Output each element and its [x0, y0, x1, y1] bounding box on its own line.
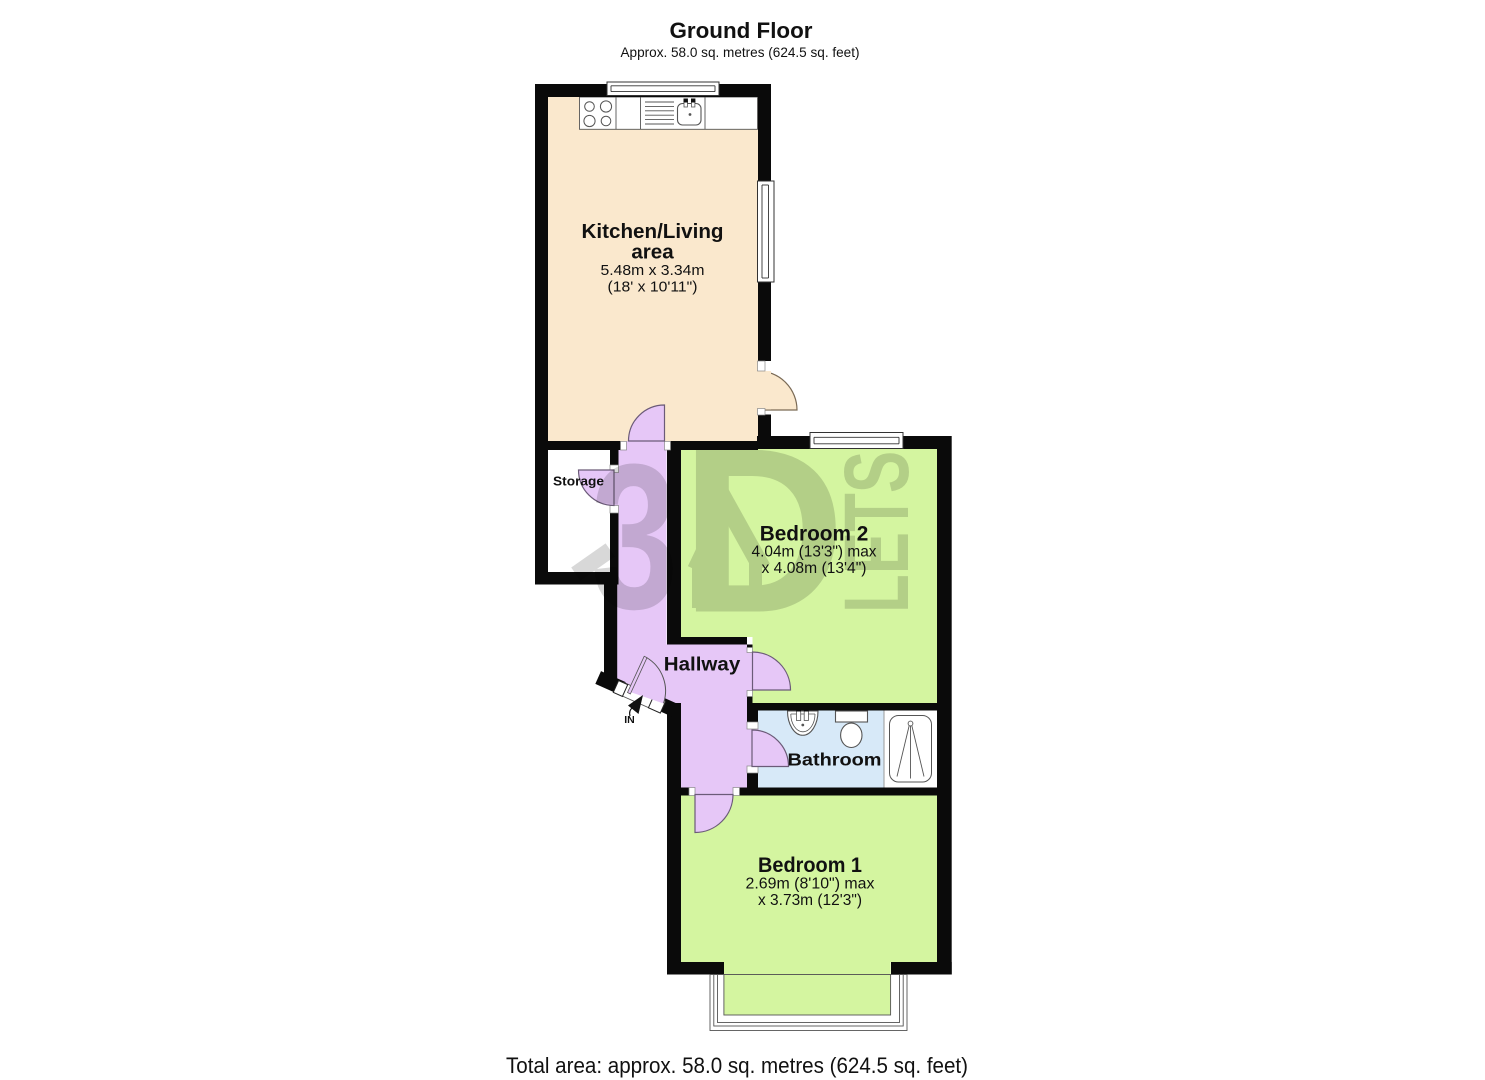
- svg-text:Bedroom 2: Bedroom 2: [760, 523, 869, 546]
- svg-text:(18' x 10'11"): (18' x 10'11"): [608, 280, 698, 296]
- svg-text:Bathroom: Bathroom: [788, 750, 882, 770]
- svg-text:Storage: Storage: [553, 475, 604, 489]
- svg-text:Hallway: Hallway: [664, 654, 741, 676]
- svg-text:Total area: approx. 58.0 sq. m: Total area: approx. 58.0 sq. metres (624…: [506, 1053, 968, 1078]
- svg-text:area: area: [631, 241, 674, 264]
- svg-text:Bedroom 1: Bedroom 1: [758, 854, 862, 877]
- svg-text:2.69m (8'10") max: 2.69m (8'10") max: [746, 876, 875, 893]
- svg-text:IN: IN: [624, 714, 635, 726]
- svg-text:Ground Floor: Ground Floor: [670, 18, 813, 43]
- svg-text:x 4.08m (13'4"): x 4.08m (13'4"): [762, 560, 867, 577]
- svg-text:x 3.73m (12'3"): x 3.73m (12'3"): [758, 892, 862, 909]
- svg-text:4.04m (13'3") max: 4.04m (13'3") max: [752, 544, 877, 561]
- svg-text:5.48m x 3.34m: 5.48m x 3.34m: [601, 263, 705, 279]
- svg-text:3: 3: [591, 421, 678, 652]
- svg-text:Approx. 58.0 sq. metres (624.5: Approx. 58.0 sq. metres (624.5 sq. feet): [621, 44, 860, 60]
